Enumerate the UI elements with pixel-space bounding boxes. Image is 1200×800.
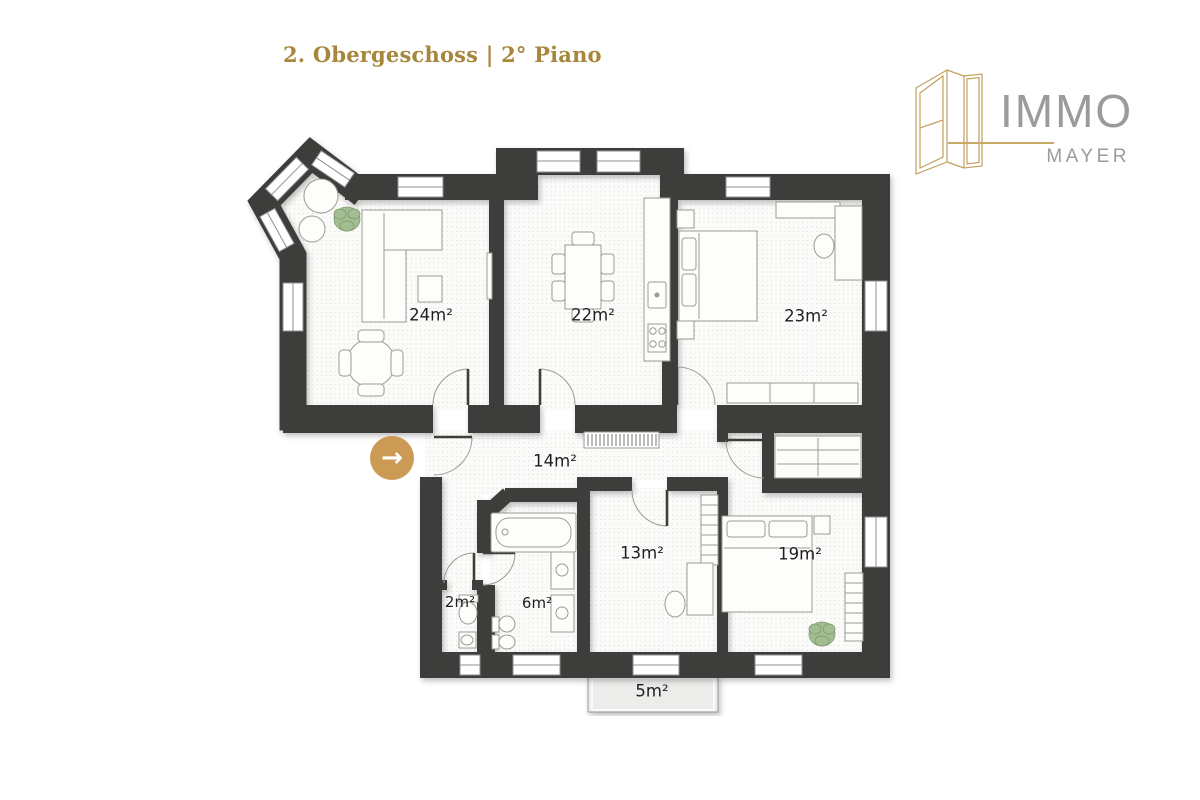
kitchen-window-1: [537, 151, 580, 172]
pillow: [727, 521, 765, 537]
side-table: [418, 276, 442, 302]
plant: [809, 622, 835, 646]
round-dining-table: [347, 339, 395, 387]
chair: [339, 350, 351, 376]
nightstand: [677, 321, 694, 339]
floor-plan-drawing: [0, 0, 1200, 800]
chair: [358, 330, 384, 342]
nightstand: [814, 516, 830, 534]
desk-chair: [814, 234, 834, 258]
floorplan-page: 2. Obergeschoss | 2° Piano IMMO MAYER: [0, 0, 1200, 800]
living-left-window: [283, 283, 303, 331]
armchair: [299, 216, 325, 242]
desk-chair: [665, 591, 685, 617]
dresser: [776, 202, 840, 218]
room-label-bedroom-second: 19m²: [778, 545, 822, 564]
room-label-hallway: 14m²: [533, 452, 577, 471]
nightstand: [677, 210, 694, 228]
sideboard: [727, 383, 858, 403]
bedroom19-bottom-window: [755, 655, 802, 675]
desk: [687, 563, 713, 615]
room-label-wc: 2m²: [445, 593, 475, 611]
chair: [601, 281, 614, 301]
desk: [835, 206, 862, 280]
bidet: [499, 635, 515, 649]
entrance-arrow-icon: →: [370, 436, 414, 480]
kitchen-table: [565, 245, 601, 309]
living-top-window: [398, 177, 443, 197]
room-label-living: 24m²: [409, 306, 453, 325]
washer: [551, 552, 574, 589]
toilet-tank: [492, 617, 499, 632]
pillow: [682, 274, 696, 306]
bedroom23-top-window: [726, 177, 770, 197]
toilet: [499, 616, 515, 632]
pillow: [682, 238, 696, 270]
balcony-door-window: [633, 655, 679, 675]
plant: [334, 207, 360, 231]
chair: [572, 232, 594, 245]
armchair: [304, 179, 338, 213]
pillow: [769, 521, 807, 537]
wc-bottom-window: [460, 655, 480, 675]
room-label-kitchen: 22m²: [571, 306, 615, 325]
dryer: [551, 595, 574, 632]
room-label-bedroom-large: 23m²: [784, 307, 828, 326]
room-label-bathroom: 6m²: [522, 594, 552, 612]
chair: [552, 281, 565, 301]
kitchen-window-2: [597, 151, 640, 172]
bidet-base: [492, 635, 499, 649]
tv: [487, 253, 492, 299]
hallway-radiator: [584, 432, 659, 448]
chair: [601, 254, 614, 274]
bath-bottom-window: [513, 655, 560, 675]
chair: [358, 384, 384, 396]
chair: [552, 254, 565, 274]
chair: [391, 350, 403, 376]
bedroom23-right-window: [865, 281, 887, 331]
room-label-room-small: 13m²: [620, 544, 664, 563]
room-label-balcony: 5m²: [635, 682, 668, 701]
bedroom19-right-window: [865, 517, 887, 567]
